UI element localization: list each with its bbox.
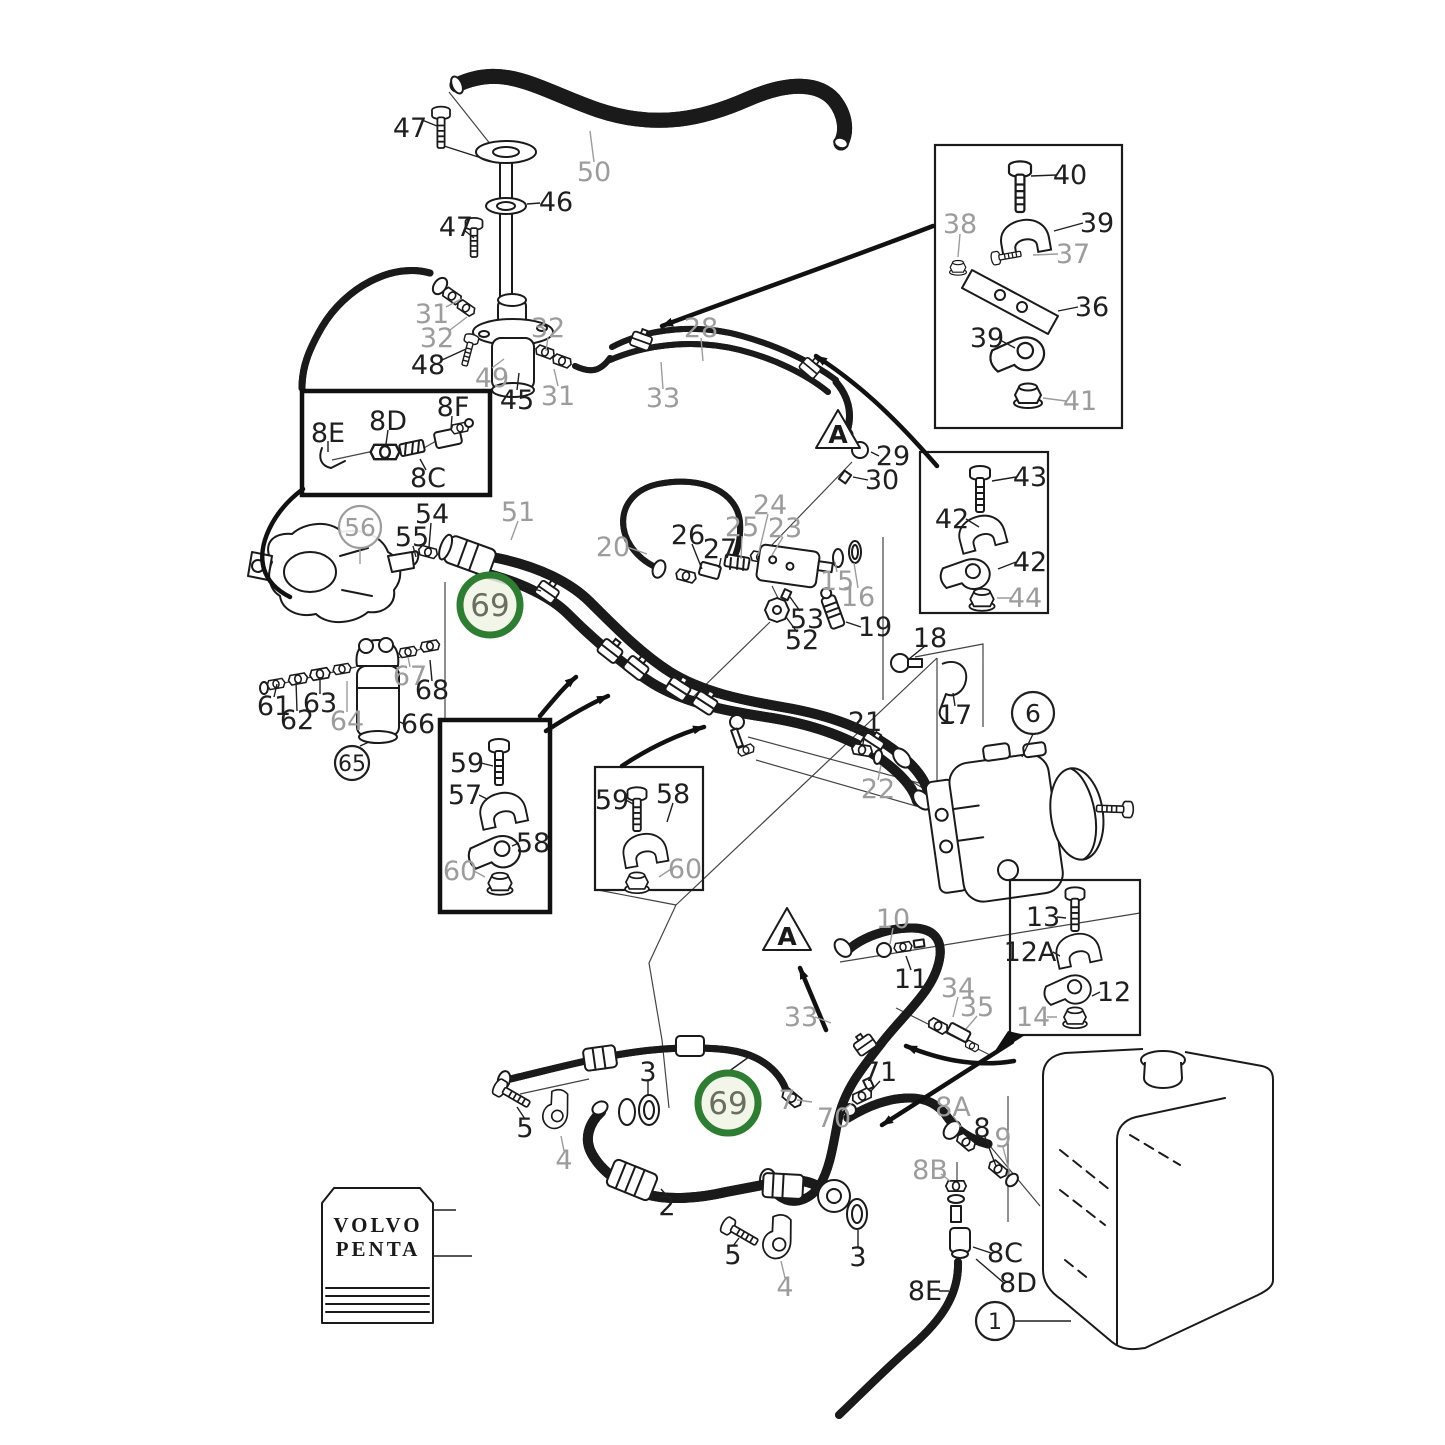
circled-ref-69: 69 — [698, 1073, 758, 1133]
part-label-42: 42 — [935, 504, 969, 535]
clamp-4-icon — [541, 1088, 572, 1131]
part-label-58: 58 — [516, 828, 550, 859]
hose-20-assembly — [623, 482, 861, 630]
circled-ref-1: 1 — [976, 1302, 1014, 1340]
part-label-66: 66 — [401, 709, 435, 740]
part-label-8F: 8F — [437, 392, 470, 423]
bolt-40-icon — [1009, 161, 1031, 212]
seal-15-icon — [833, 549, 843, 567]
circled-ref-69: 69 — [460, 575, 520, 635]
part-label-43: 43 — [1013, 462, 1047, 493]
part-label-8C: 8C — [410, 463, 446, 494]
bolt-5-icon — [491, 1078, 533, 1112]
part-label-3: 3 — [639, 1057, 656, 1088]
part-label-47: 47 — [439, 212, 473, 243]
inset-box-12-14 — [991, 880, 1140, 1057]
part-label-31: 31 — [541, 381, 575, 412]
warning-triangle-bottom: A — [763, 908, 811, 951]
part-label-45: 45 — [500, 385, 534, 416]
part-label-44: 44 — [1008, 583, 1042, 614]
part-label-19: 19 — [858, 612, 892, 643]
part-label-50: 50 — [577, 157, 611, 188]
part-label-40: 40 — [1053, 160, 1087, 191]
fitting-26-icon — [675, 568, 697, 583]
nut-41-icon — [1014, 384, 1042, 409]
part-label-8B: 8B — [912, 1155, 948, 1186]
bolt-18-icon — [891, 654, 909, 672]
part-label-57: 57 — [448, 780, 482, 811]
part-label-33: 33 — [784, 1002, 818, 1033]
bolt-47-icon — [432, 107, 450, 148]
part-label-18: 18 — [913, 623, 947, 654]
part-label-33: 33 — [646, 383, 680, 414]
logo-line-1: VOLVO — [333, 1213, 422, 1237]
part-label-23: 23 — [768, 513, 802, 544]
part-label-28: 28 — [684, 313, 718, 344]
bolt-59-icon — [489, 739, 509, 785]
part-label-36: 36 — [1075, 292, 1109, 323]
fitting-8b-icon — [946, 1181, 966, 1191]
part-label-20: 20 — [596, 532, 630, 563]
part-label-21: 21 — [848, 707, 882, 738]
volvo-penta-decal: VOLVO PENTA — [322, 1188, 433, 1323]
part-label-13: 13 — [1026, 902, 1060, 933]
part-label-55: 55 — [395, 522, 429, 553]
circled-ref-number: 69 — [708, 1086, 747, 1122]
nut-44-icon — [969, 589, 994, 611]
part-label-59: 59 — [595, 785, 629, 816]
circled-ref-6: 6 — [1012, 692, 1054, 734]
part-label-8A: 8A — [935, 1092, 971, 1123]
fitting-62-icon — [288, 673, 309, 686]
part-label-59: 59 — [450, 748, 484, 779]
part-label-26: 26 — [671, 520, 705, 551]
part-label-2: 2 — [658, 1191, 675, 1222]
part-label-71: 71 — [863, 1057, 897, 1088]
part-label-8D: 8D — [999, 1268, 1037, 1299]
part-label-48: 48 — [411, 350, 445, 381]
part-label-60: 60 — [668, 854, 702, 885]
clamp-39-icon — [998, 216, 1051, 258]
part-label-3: 3 — [849, 1242, 866, 1273]
part-label-30: 30 — [865, 465, 899, 496]
parts-diagram-page: A A — [0, 0, 1445, 1445]
clamp-4b-icon — [761, 1213, 795, 1261]
circled-ref-number: 69 — [470, 588, 509, 624]
part-label-39: 39 — [1080, 208, 1114, 239]
part-label-42: 42 — [1013, 547, 1047, 578]
nut-38-icon — [950, 261, 967, 276]
logo-line-2: PENTA — [336, 1237, 421, 1261]
part-label-17: 17 — [938, 700, 972, 731]
part-label-58: 58 — [656, 779, 690, 810]
part-label-32: 32 — [531, 313, 565, 344]
nut-14-icon — [1063, 1007, 1087, 1028]
part-label-64: 64 — [330, 706, 364, 737]
part-label-12A: 12A — [1004, 937, 1057, 968]
coupling-8c-8d-icon — [950, 1228, 970, 1252]
bolt-43-icon — [970, 466, 990, 512]
part-label-5: 5 — [516, 1113, 533, 1144]
clamp-58b-icon — [621, 831, 669, 869]
fitting-64-icon — [332, 663, 351, 675]
warning-triangle-letter: A — [828, 420, 848, 449]
part-label-4: 4 — [555, 1145, 572, 1176]
fittings-10-11 — [877, 939, 925, 957]
circled-ref-number: 1 — [988, 1310, 1002, 1335]
part-label-22: 22 — [861, 774, 895, 805]
clamp-12a-icon — [1053, 930, 1102, 969]
fitting-67-icon — [398, 646, 417, 658]
fitting-8-icon — [987, 1159, 1009, 1180]
part-label-38: 38 — [943, 209, 977, 240]
nut-60-icon — [487, 873, 512, 895]
part-label-16: 16 — [841, 582, 875, 613]
clamp-57-icon — [477, 789, 528, 830]
pump-unit-56 — [248, 524, 414, 622]
stud-53-icon — [781, 589, 791, 600]
warning-triangle-top: A — [816, 410, 860, 449]
circled-ref-65: 65 — [335, 746, 369, 780]
part-label-47: 47 — [393, 113, 427, 144]
part-label-8E: 8E — [908, 1276, 942, 1307]
part-label-9: 9 — [994, 1123, 1011, 1154]
part-label-70: 70 — [817, 1103, 851, 1134]
part-label-4: 4 — [776, 1272, 793, 1303]
part-label-7: 7 — [778, 1085, 795, 1116]
part-label-68: 68 — [415, 675, 449, 706]
part-label-10: 10 — [876, 904, 910, 935]
part-label-5: 5 — [724, 1240, 741, 1271]
part-label-12: 12 — [1097, 977, 1131, 1008]
circled-ref-number: 65 — [338, 752, 366, 777]
part-label-41: 41 — [1063, 386, 1097, 417]
parts-diagram-canvas: A A — [0, 0, 1445, 1445]
nut-8d-icon — [371, 445, 400, 459]
part-label-51: 51 — [501, 497, 535, 528]
part-label-39: 39 — [970, 323, 1004, 354]
part-label-8D: 8D — [369, 406, 407, 437]
circled-ref-number: 56 — [344, 513, 376, 542]
part-label-37: 37 — [1056, 239, 1090, 270]
part-label-60: 60 — [443, 856, 477, 887]
warning-triangle-letter: A — [777, 922, 797, 951]
circled-ref-56: 56 — [339, 506, 381, 548]
part-label-11: 11 — [894, 964, 928, 995]
part-label-8E: 8E — [311, 418, 345, 449]
bolt-59b-icon — [628, 787, 647, 831]
part-label-8: 8 — [973, 1113, 990, 1144]
expansion-tank-1 — [1043, 1049, 1273, 1349]
part-label-14: 14 — [1016, 1002, 1050, 1033]
circled-ref-number: 6 — [1025, 699, 1041, 728]
fitting-68-icon — [420, 640, 441, 653]
part-label-35: 35 — [960, 992, 994, 1023]
nut-60b-icon — [625, 872, 649, 893]
part-label-46: 46 — [539, 187, 573, 218]
hose-50 — [449, 75, 850, 150]
part-label-8C: 8C — [987, 1238, 1023, 1269]
tank-cap-icon — [1141, 1051, 1185, 1088]
part-label-52: 52 — [785, 625, 819, 656]
stud-30-icon — [839, 471, 851, 484]
